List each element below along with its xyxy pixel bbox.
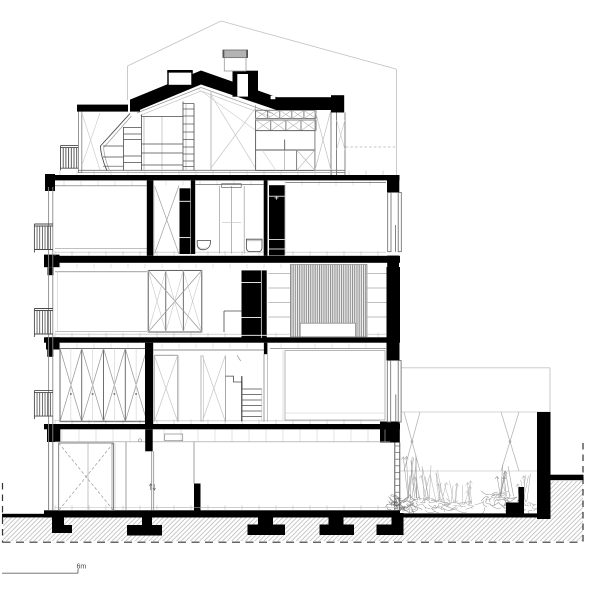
svg-text:6m: 6m [77,564,87,571]
